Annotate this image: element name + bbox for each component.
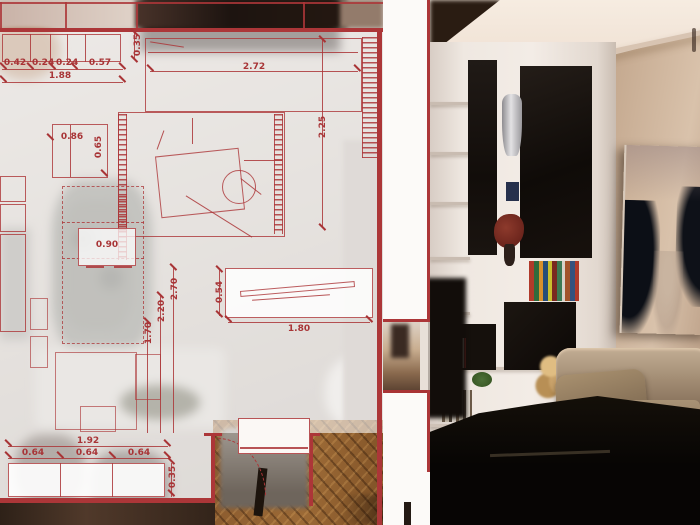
- painting-sky-haze: [625, 145, 700, 202]
- dining-chair-left-1: [30, 298, 48, 330]
- fixture-tall: [0, 234, 26, 332]
- dim-sideboard-depth: 0.35: [168, 465, 178, 489]
- small-books-upper: [438, 170, 468, 190]
- dim-tv-depth: 0.54: [215, 279, 225, 305]
- green-plant-small: [472, 372, 492, 387]
- design-presentation-image: 0.42 0.24 0.24 0.57 1.88 0.35 2.72 2.25: [0, 0, 700, 525]
- blue-book: [506, 182, 519, 201]
- cabinet-mark-1: [86, 266, 104, 268]
- dim-room-chain-1: 2.70: [170, 275, 180, 303]
- dim-wardrobe-total: 1.88: [40, 71, 80, 81]
- kitchen-dash-1: [62, 222, 144, 223]
- sideboard-div-1: [60, 463, 61, 497]
- dining-chair-right: [135, 354, 161, 400]
- sofa-inner-line: [148, 52, 358, 53]
- plan-sketch: 0.42 0.24 0.24 0.57 1.88 0.35 2.72 2.25: [0, 0, 430, 525]
- painting-light-path: [651, 251, 683, 335]
- sideboard-div-2: [112, 463, 113, 497]
- deskroom-hatch-right: [274, 114, 283, 234]
- render-photo: [430, 0, 700, 525]
- notch-furniture-line: [240, 447, 308, 449]
- dim-line-sideboard-chain: [8, 458, 168, 459]
- dim-armchair-depth: 0.65: [94, 134, 104, 160]
- cabinet-mark-2: [114, 266, 132, 268]
- dim-sideboard-total: 1.92: [70, 436, 106, 446]
- shelf-line-1: [430, 102, 470, 105]
- logo-mark: [692, 28, 696, 52]
- abstract-painting: [620, 145, 700, 335]
- shelf-line-4: [430, 257, 470, 260]
- colorful-books-row: [529, 261, 579, 301]
- dark-chair-silhouette: [430, 278, 466, 418]
- shelf-line-3: [430, 202, 470, 205]
- fixture-2: [0, 204, 26, 232]
- dim-wardrobe-4: 0.57: [85, 58, 115, 68]
- dim-sideboard-1: 0.64: [18, 448, 48, 458]
- dim-armchair-width: 0.86: [56, 132, 88, 142]
- deskroom-sketch-2: [244, 160, 282, 161]
- fixture-1: [0, 176, 26, 202]
- shelf-line-2: [430, 152, 470, 155]
- black-panel-tall: [468, 60, 497, 255]
- dining-chair-bottom: [80, 406, 116, 432]
- dim-wardrobe-depth: 0.35: [133, 33, 143, 57]
- dim-line-wardrobe: [2, 69, 123, 70]
- dim-line-tv-width: [228, 322, 370, 323]
- dim-sideboard-3: 0.64: [124, 448, 154, 458]
- silver-vase: [502, 94, 522, 156]
- dim-line-sideboard-total: [8, 446, 168, 447]
- black-panel-wide: [520, 66, 592, 258]
- dim-sofa-width: 2.72: [238, 62, 270, 72]
- dim-room-height: 2.25: [318, 114, 328, 140]
- dim-line-wardrobe-total: [2, 82, 123, 83]
- wardrobe-div-1: [30, 34, 31, 62]
- dim-sideboard-2: 0.64: [72, 448, 102, 458]
- dim-cabinet-width: 0.90: [82, 240, 132, 250]
- deskroom-sketch-3: [192, 118, 193, 144]
- dim-room-chain-2: 2.20: [157, 297, 167, 325]
- dim-tv-width: 1.80: [282, 324, 316, 334]
- dining-chair-left-2: [30, 336, 48, 368]
- sideboard-outline: [8, 463, 165, 497]
- sofa-outline: [145, 38, 362, 112]
- dim-room-chain-3: 1.70: [144, 319, 154, 347]
- red-plant-vase: [504, 244, 515, 266]
- hatched-wall-right: [362, 37, 379, 158]
